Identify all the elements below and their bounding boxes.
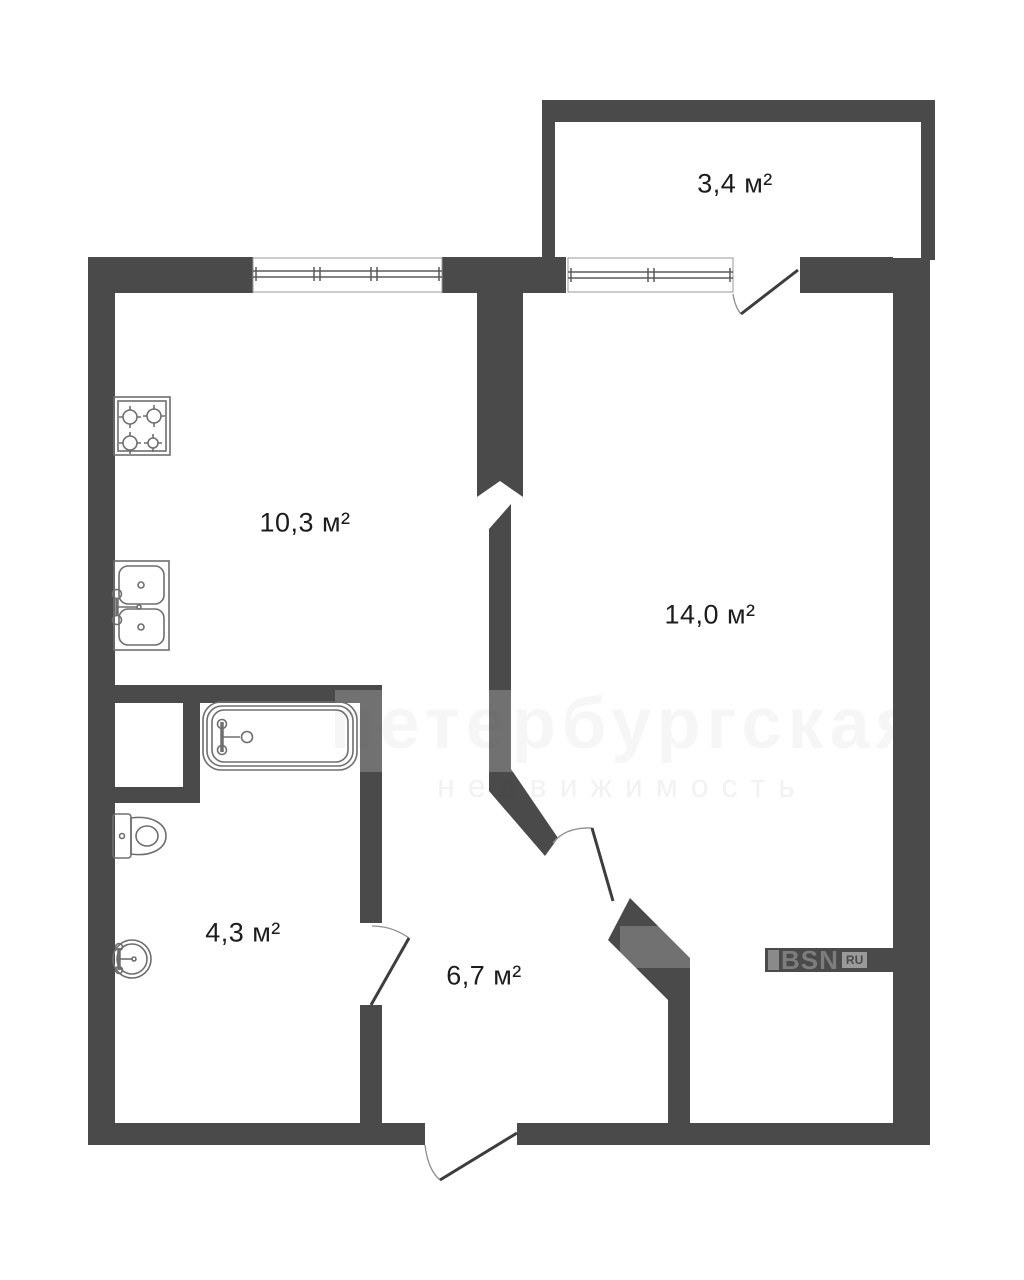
entrance-door-leaf — [440, 1133, 517, 1180]
bathroom-door-arc — [372, 926, 409, 938]
room-label-bathroom: 4,3 м² — [205, 918, 281, 949]
balcony-right-wall — [921, 100, 935, 260]
living-room-door-arc — [553, 828, 592, 843]
room-label-hallway: 6,7 м² — [446, 961, 522, 992]
balcony-window — [568, 258, 733, 292]
kitchen-living-divider-wall — [477, 293, 523, 497]
bathroom-right-wall-lower — [360, 1005, 382, 1123]
balcony-door — [733, 270, 798, 314]
living-room-door — [553, 828, 613, 901]
living-room-door-leaf — [592, 828, 613, 901]
bathroom-door-leaf — [371, 938, 409, 1005]
room-label-kitchen: 10,3 м² — [259, 508, 350, 539]
right-exterior-wall — [893, 258, 930, 1145]
washbasin-icon — [113, 940, 151, 978]
stove-icon — [114, 397, 170, 455]
bathtub-icon — [203, 702, 357, 770]
entrance-door-arc — [425, 1145, 440, 1180]
room-label-balcony: 3,4 м² — [697, 169, 773, 200]
entrance-door — [425, 1133, 517, 1180]
balcony-door-arc — [733, 294, 741, 314]
floor-plan-drawing — [0, 0, 1024, 1280]
floor-plan: 3,4 м² 10,3 м² 14,0 м² 4,3 м² 6,7 м² пет… — [0, 0, 1024, 1280]
balcony-door-leaf — [741, 270, 798, 314]
kitchen-window — [253, 258, 442, 292]
kitchen-sink-icon — [113, 561, 170, 650]
hallway-partition-upper — [489, 504, 558, 856]
bottom-wall-left-segment — [88, 1123, 425, 1145]
toilet-icon — [113, 814, 166, 858]
alcove-stub-wall — [765, 948, 893, 972]
balcony-top-wall — [542, 100, 935, 122]
shaft-bottom-wall — [115, 787, 200, 803]
balcony-left-wall — [542, 100, 555, 258]
bathroom-door — [371, 926, 409, 1005]
watermark-band-2 — [620, 926, 695, 968]
top-wall-right-segment — [800, 257, 893, 293]
room-label-living: 14,0 м² — [664, 600, 755, 631]
top-wall-mid-segment — [442, 257, 566, 293]
bottom-wall-right-segment — [517, 1123, 930, 1145]
watermark-band — [335, 690, 707, 772]
